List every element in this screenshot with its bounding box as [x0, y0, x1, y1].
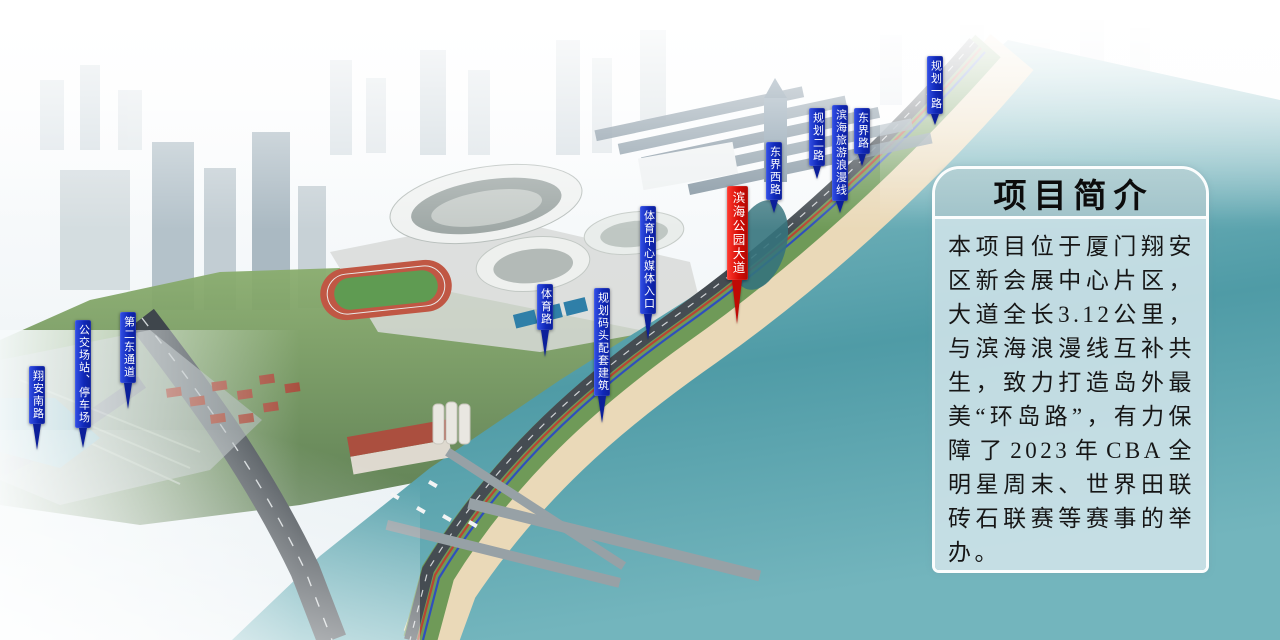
- label-text: 体育中心媒体入口: [640, 206, 656, 314]
- label-text: 滨海公园大道: [727, 186, 748, 280]
- label-pointer: [931, 114, 939, 125]
- label-dongjie-road: 东界路: [854, 108, 870, 166]
- label-pointer: [124, 383, 132, 409]
- aerial-project-map: 翔安南路 公交场站、停车场 第二东通道 体育路 规划码头配套建筑 体育中心媒体入…: [0, 0, 1280, 640]
- label-text: 规划码头配套建筑: [594, 288, 610, 396]
- label-pointer: [79, 428, 87, 448]
- project-intro-header: 项目简介: [935, 169, 1206, 219]
- label-pointer: [770, 200, 778, 213]
- label-text: 东界路: [854, 108, 870, 154]
- label-text: 滨海旅游浪漫线: [832, 105, 848, 201]
- label-text: 翔安南路: [29, 366, 45, 424]
- label-binhai-park-avenue: 滨海公园大道: [727, 186, 748, 324]
- panel-body-text: 本项目位于厦门翔安区新会展中心片区，大道全长3.12公里，与滨海浪漫线互补共生，…: [935, 219, 1206, 570]
- panel-title: 项目简介: [994, 169, 1154, 217]
- label-text: 体育路: [537, 284, 553, 330]
- label-planned-road-2: 规划二路: [809, 108, 825, 179]
- label-second-east-corridor: 第二东通道: [120, 312, 136, 409]
- label-xiangan-south-road: 翔安南路: [29, 366, 45, 450]
- silos: [433, 402, 470, 444]
- label-sports-road: 体育路: [537, 284, 553, 357]
- label-pointer: [598, 396, 606, 423]
- label-pointer: [644, 314, 652, 340]
- label-text: 规划一路: [927, 56, 943, 114]
- label-pointer: [858, 154, 866, 166]
- label-text: 东界西路: [766, 142, 782, 200]
- label-pointer: [732, 280, 742, 324]
- label-pointer: [813, 166, 821, 179]
- label-pointer: [541, 330, 549, 357]
- label-text: 规划二路: [809, 108, 825, 166]
- label-pointer: [836, 201, 844, 213]
- label-text: 公交场站、停车场: [75, 320, 91, 428]
- project-intro-panel: 项目简介 本项目位于厦门翔安区新会展中心片区，大道全长3.12公里，与滨海浪漫线…: [932, 166, 1209, 573]
- label-text: 第二东通道: [120, 312, 136, 383]
- label-sports-center-media-entrance: 体育中心媒体入口: [640, 206, 656, 340]
- fog-bottom-left: [0, 430, 420, 640]
- label-pointer: [33, 424, 41, 450]
- label-planned-wharf-buildings: 规划码头配套建筑: [594, 288, 610, 423]
- label-bus-station-parking: 公交场站、停车场: [75, 320, 91, 448]
- label-planned-road-1: 规划一路: [927, 56, 943, 125]
- label-dongjie-west-road: 东界西路: [766, 142, 782, 213]
- label-binhai-tourism-romantic-line: 滨海旅游浪漫线: [832, 105, 848, 213]
